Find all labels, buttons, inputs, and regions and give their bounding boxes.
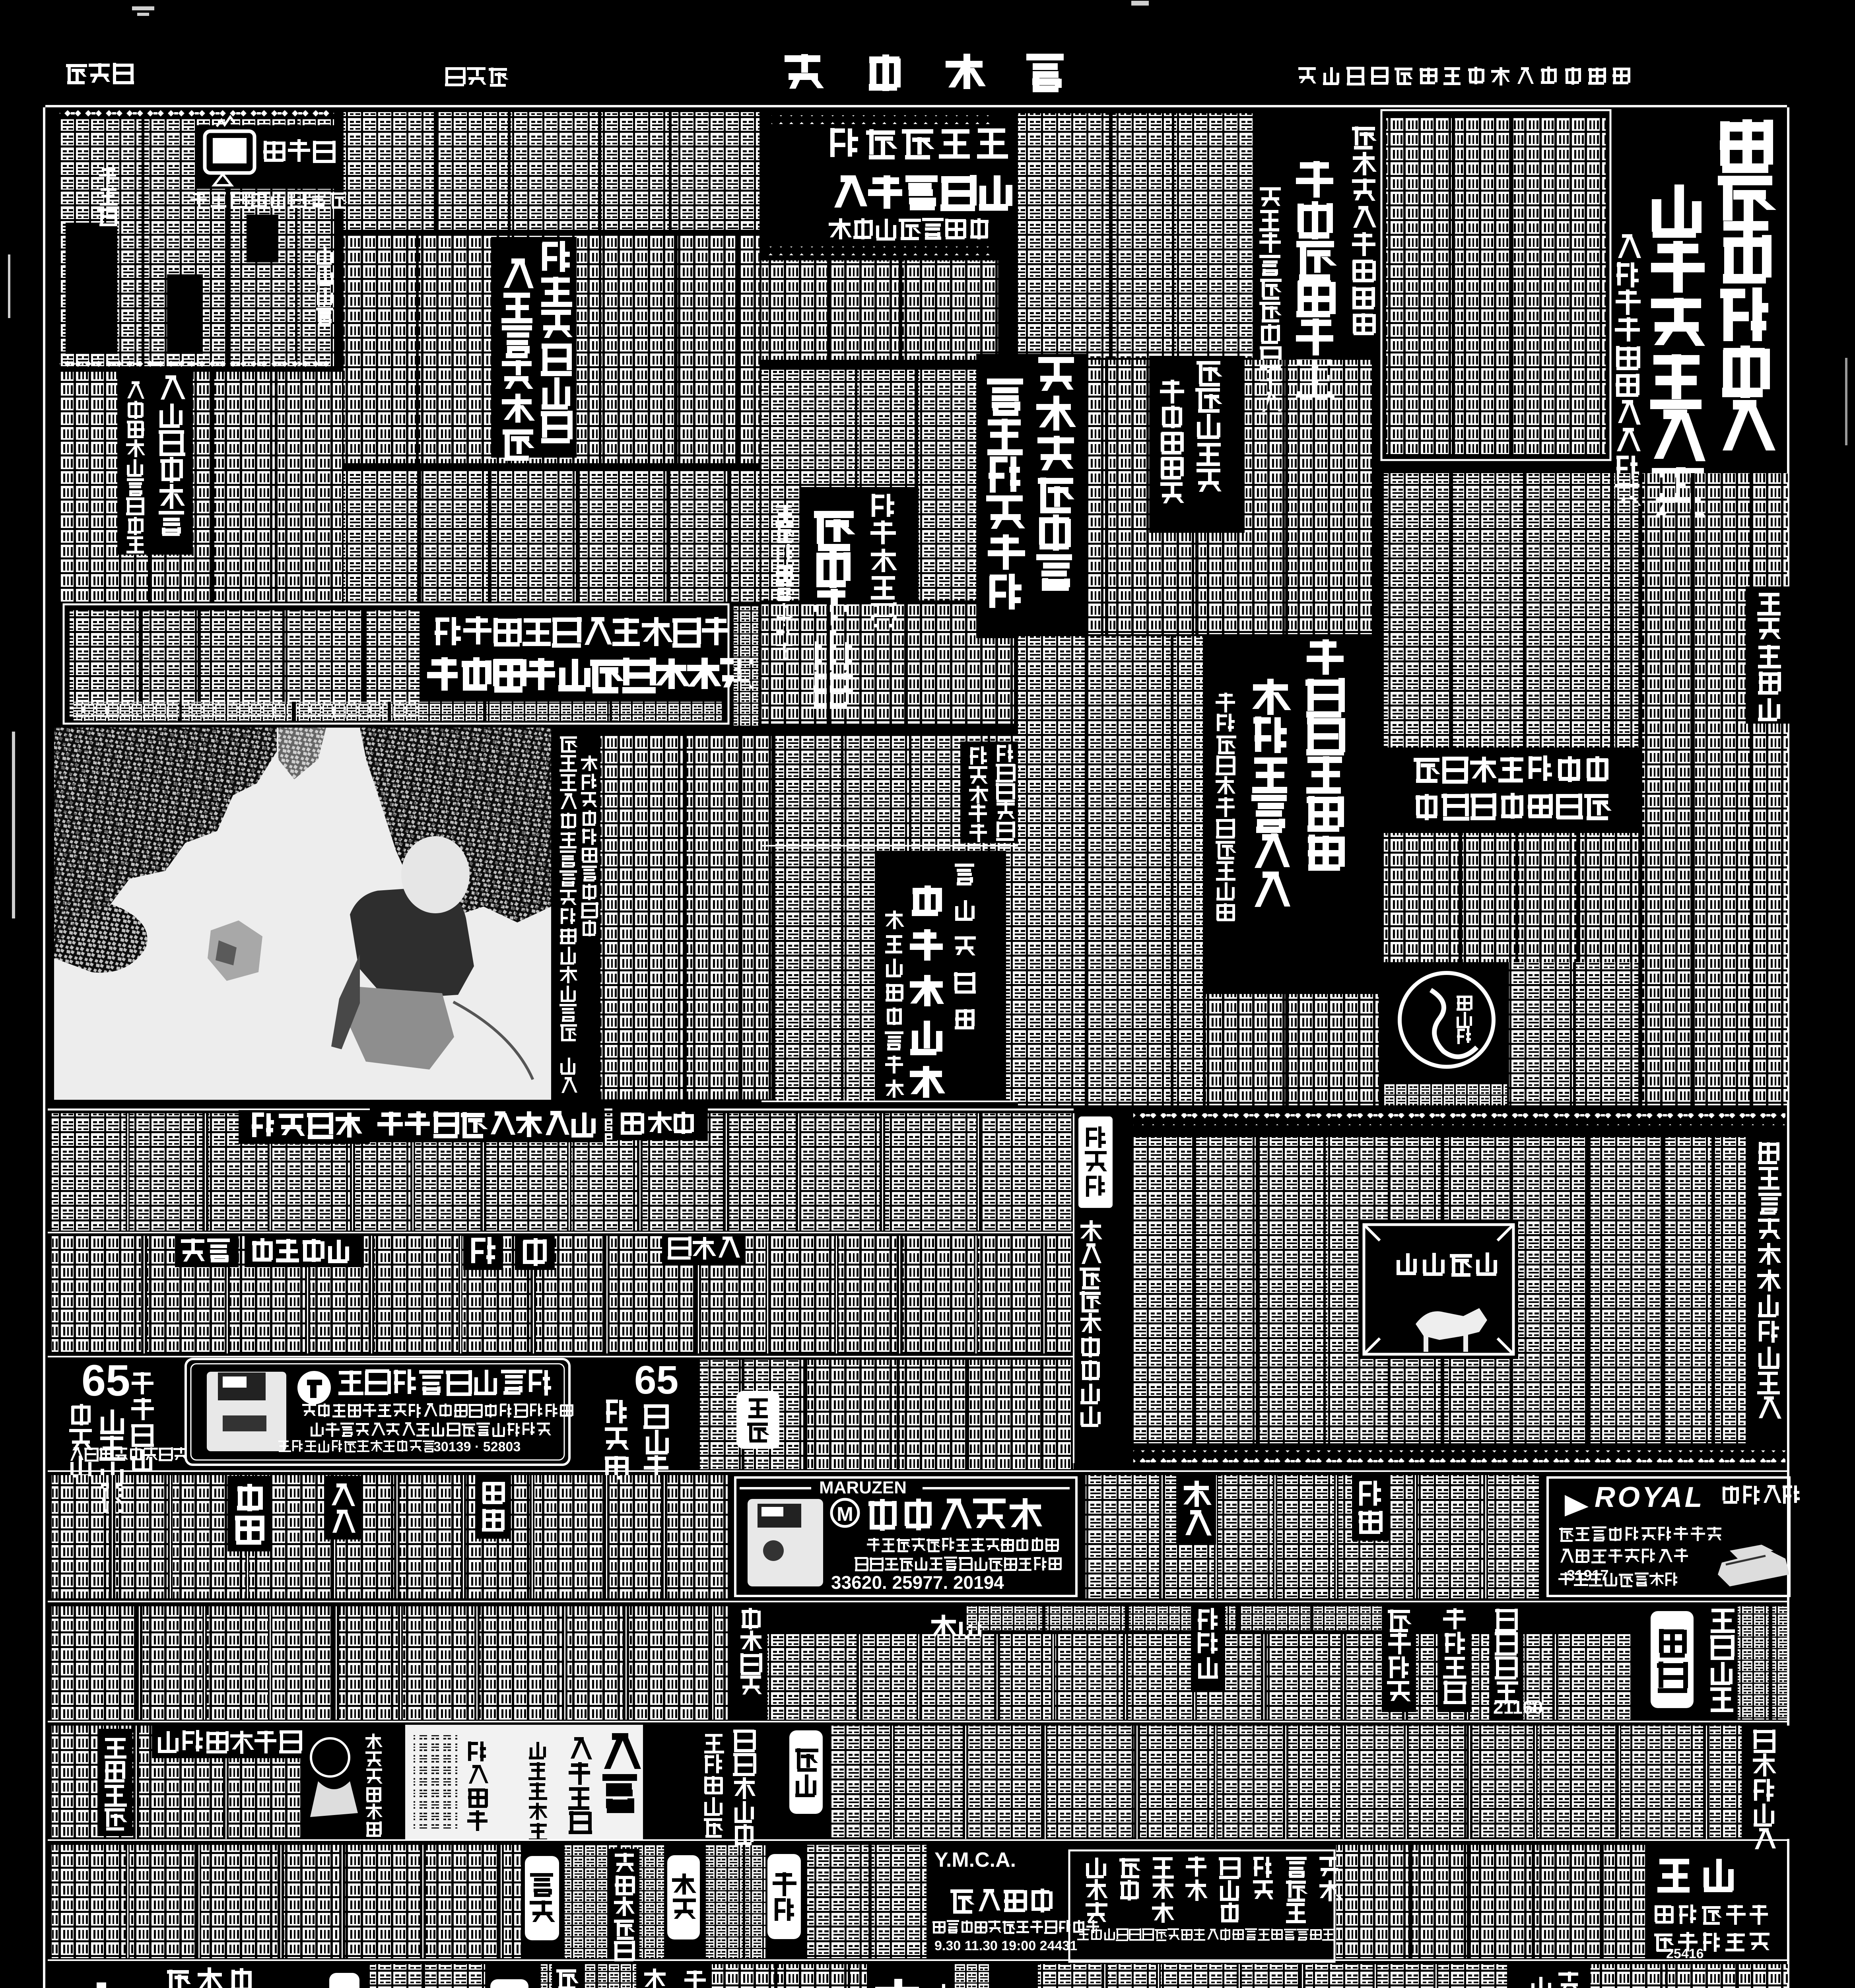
svg-text:30139 · 52803: 30139 · 52803 — [433, 1439, 521, 1454]
svg-text:21160: 21160 — [1493, 1697, 1543, 1718]
svg-text:ROYAL: ROYAL — [1595, 1481, 1705, 1513]
svg-text:9.30 11.30 19:00 24431: 9.30 11.30 19:00 24431 — [934, 1938, 1077, 1953]
svg-text:65: 65 — [634, 1358, 678, 1402]
svg-text:25416: 25416 — [1666, 1946, 1704, 1961]
svg-text:65: 65 — [82, 1356, 130, 1405]
svg-text:M: M — [837, 1503, 853, 1525]
svg-text:Y.M.C.A.: Y.M.C.A. — [934, 1848, 1016, 1872]
svg-text:33620. 25977. 20194: 33620. 25977. 20194 — [831, 1572, 1004, 1593]
svg-text:31917: 31917 — [1567, 1567, 1609, 1584]
svg-text:MARUZEN: MARUZEN — [819, 1478, 907, 1497]
